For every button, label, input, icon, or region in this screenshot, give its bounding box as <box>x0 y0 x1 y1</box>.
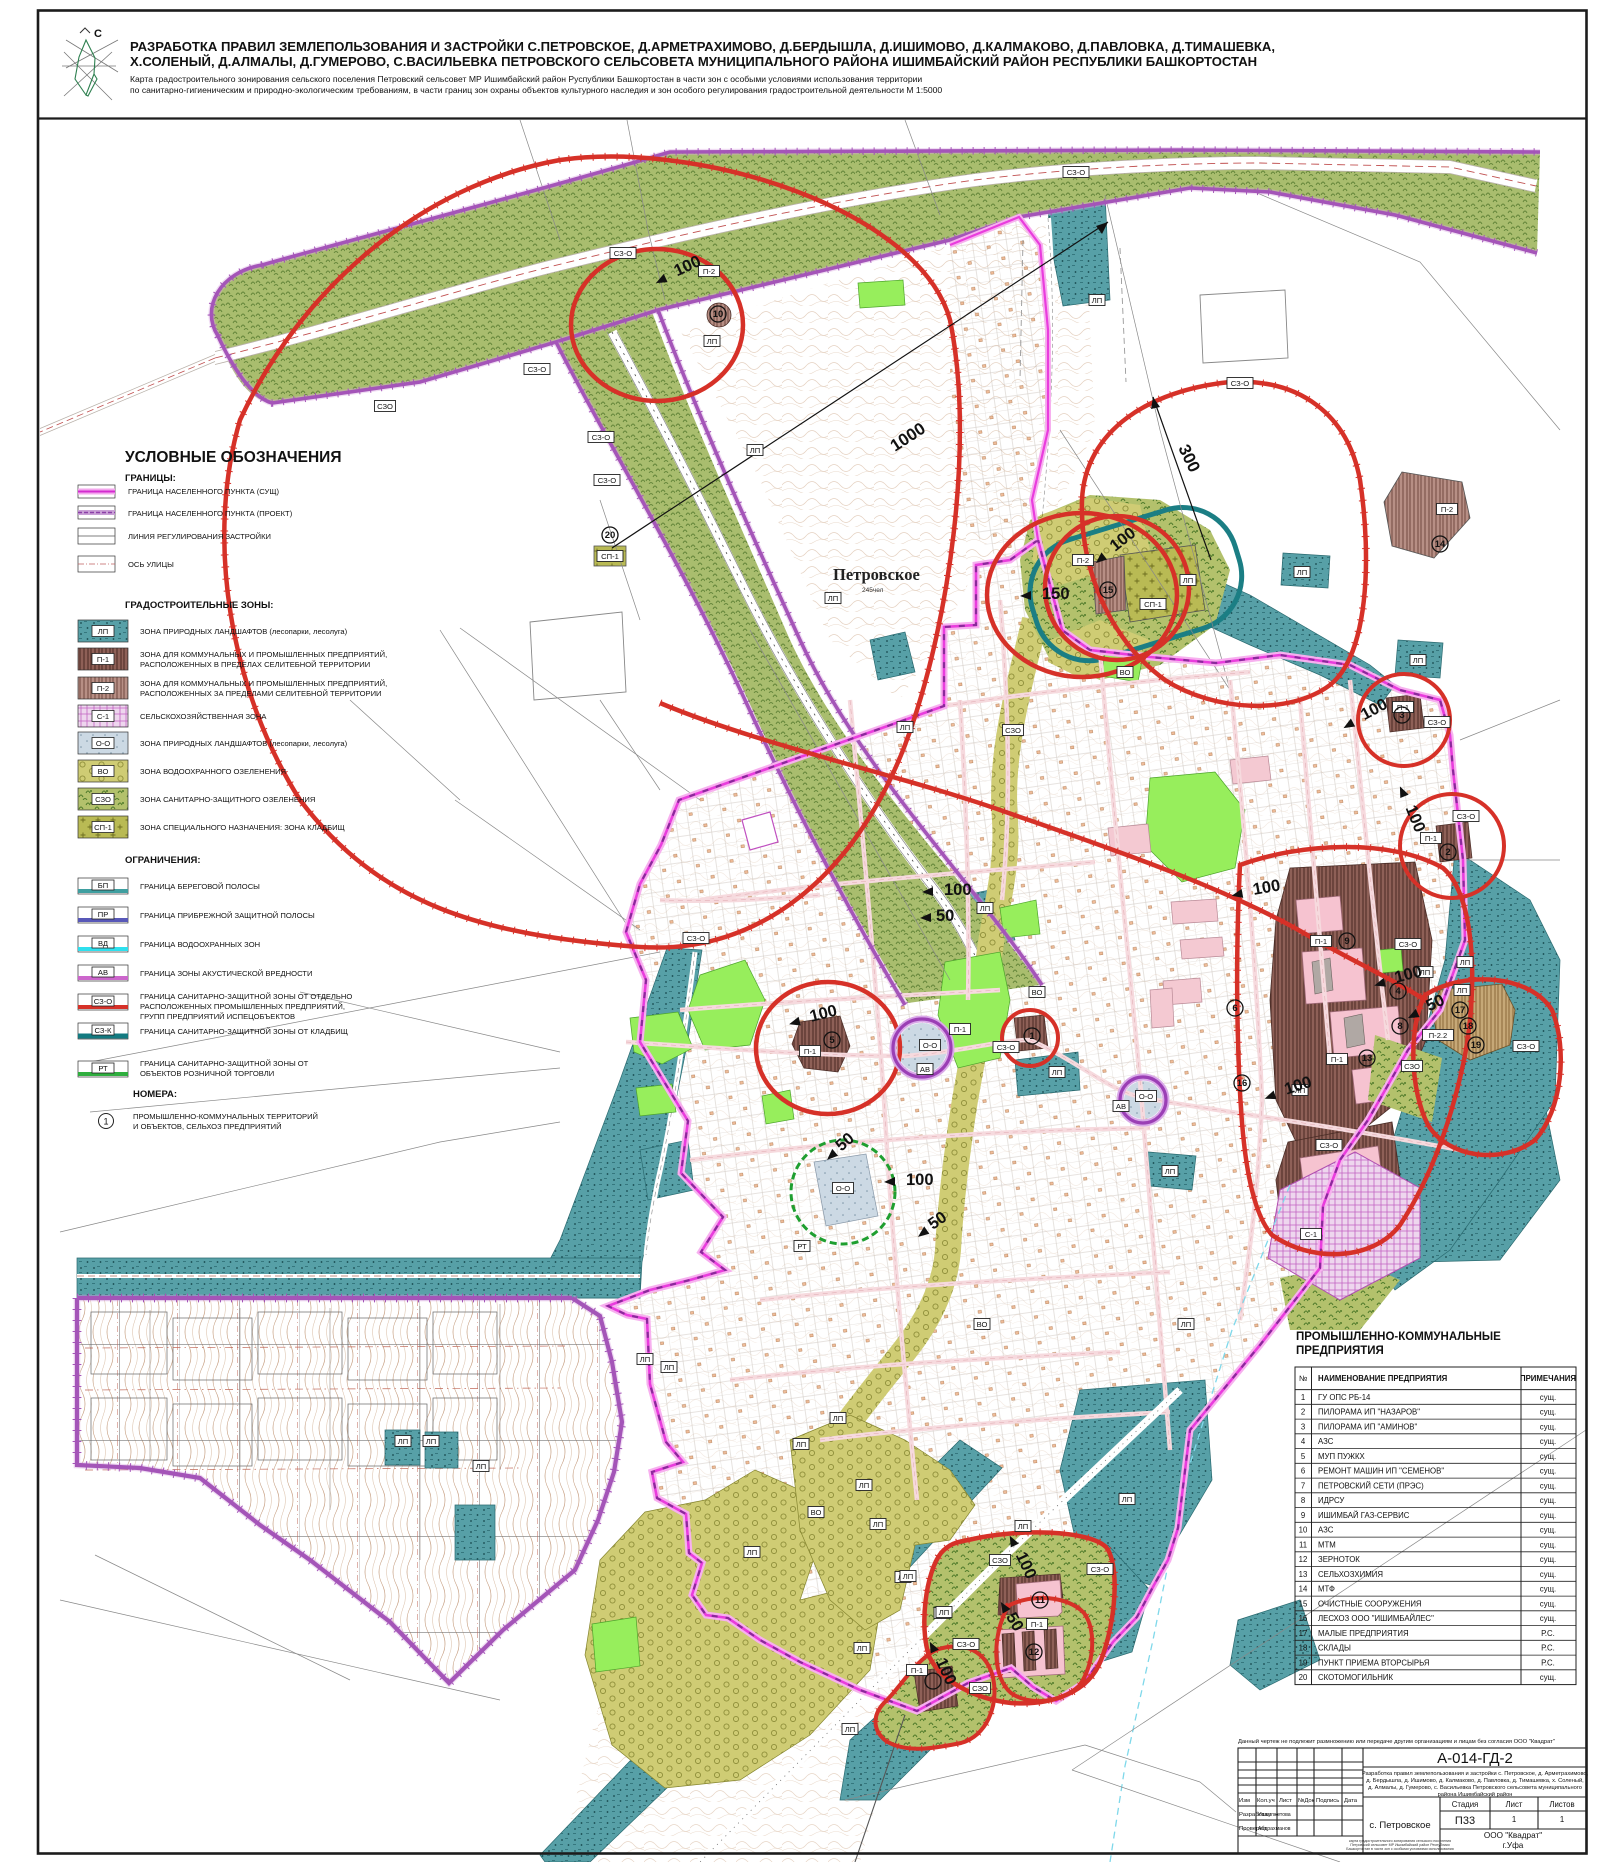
svg-text:ЗЕРНОТОК: ЗЕРНОТОК <box>1318 1555 1360 1564</box>
svg-text:16: 16 <box>1299 1614 1308 1623</box>
svg-text:Р.С.: Р.С. <box>1541 1644 1555 1653</box>
svg-text:ЛП: ЛП <box>939 1608 949 1617</box>
svg-text:ЛП: ЛП <box>1165 1167 1175 1176</box>
svg-text:О-О: О-О <box>96 739 110 748</box>
svg-text:СЗО: СЗО <box>1005 726 1021 735</box>
svg-text:ЛЕСХОЗ ООО "ИШИМБАЙЛЕС": ЛЕСХОЗ ООО "ИШИМБАЙЛЕС" <box>1318 1614 1434 1623</box>
svg-text:ЛП: ЛП <box>664 1363 674 1372</box>
svg-text:П33: П33 <box>1455 1815 1475 1827</box>
svg-text:ПИЛОРАМА ИП "АМИНОВ": ПИЛОРАМА ИП "АМИНОВ" <box>1318 1422 1417 1431</box>
svg-text:2: 2 <box>1445 847 1450 858</box>
svg-text:16: 16 <box>1237 1078 1248 1089</box>
svg-text:МАЛЫЕ ПРЕДПРИЯТИЯ: МАЛЫЕ ПРЕДПРИЯТИЯ <box>1318 1629 1409 1638</box>
svg-text:13: 13 <box>1299 1570 1308 1579</box>
svg-text:6: 6 <box>1232 1003 1237 1014</box>
svg-text:ЗОНА ДЛЯ КОММУНАЛЬНЫХ И ПРОМЫШ: ЗОНА ДЛЯ КОММУНАЛЬНЫХ И ПРОМЫШЛЕННЫХ ПРЕ… <box>140 650 387 659</box>
svg-text:И ОБЪЕКТОВ, СЕЛЬХОЗ ПРЕДПРИЯТИ: И ОБЪЕКТОВ, СЕЛЬХОЗ ПРЕДПРИЯТИЙ <box>133 1122 282 1131</box>
svg-text:П-2: П-2 <box>1441 505 1453 514</box>
svg-text:ЛП: ЛП <box>1052 1068 1062 1077</box>
svg-text:СЗ-О: СЗ-О <box>1320 1141 1339 1150</box>
svg-text:П-2: П-2 <box>1077 556 1089 565</box>
svg-text:50: 50 <box>936 907 954 925</box>
svg-text:района Ишимбайский район: района Ишимбайский район <box>1438 1791 1513 1798</box>
svg-text:18: 18 <box>1299 1644 1308 1653</box>
svg-text:д. Бердышла, д. Ишимово, д. Ка: д. Бердышла, д. Ишимово, д. Калмаково, д… <box>1366 1777 1584 1784</box>
svg-text:РАСПОЛОЖЕННЫХ ПРОМЫШЛЕННЫХ ПРЕ: РАСПОЛОЖЕННЫХ ПРОМЫШЛЕННЫХ ПРЕДПРИЯТИЙ, <box>140 1002 345 1011</box>
svg-text:РАЗРАБОТКА ПРАВИЛ ЗЕМЛЕПОЛЬЗОВ: РАЗРАБОТКА ПРАВИЛ ЗЕМЛЕПОЛЬЗОВАНИЯ И ЗАС… <box>130 39 1275 54</box>
svg-text:№Док: №Док <box>1298 1797 1315 1804</box>
svg-text:№: № <box>1299 1374 1307 1383</box>
svg-text:НАИМЕНОВАНИЕ ПРЕДПРИЯТИЯ: НАИМЕНОВАНИЕ ПРЕДПРИЯТИЯ <box>1318 1374 1448 1383</box>
svg-text:АЗС: АЗС <box>1318 1437 1334 1446</box>
svg-text:19: 19 <box>1471 1040 1482 1051</box>
svg-text:АВ: АВ <box>98 968 108 977</box>
svg-text:13: 13 <box>1362 1053 1373 1064</box>
svg-text:3: 3 <box>1399 710 1404 721</box>
svg-text:5: 5 <box>1301 1452 1306 1461</box>
svg-text:245чел: 245чел <box>862 587 884 594</box>
svg-text:4: 4 <box>1395 986 1401 997</box>
svg-text:МТМ: МТМ <box>1318 1540 1336 1549</box>
svg-text:ЛП: ЛП <box>1413 656 1423 665</box>
svg-text:СЗО: СЗО <box>972 1684 988 1693</box>
svg-text:ПРОМЫШЛЕННО-КОММУНАЛЬНЫЕ: ПРОМЫШЛЕННО-КОММУНАЛЬНЫЕ <box>1296 1331 1501 1343</box>
svg-text:сущ.: сущ. <box>1540 1526 1556 1535</box>
svg-text:ЛП: ЛП <box>1122 1495 1132 1504</box>
svg-text:ЛП: ЛП <box>750 446 760 455</box>
svg-text:П-1: П-1 <box>1031 1620 1043 1629</box>
svg-text:О-О: О-О <box>836 1184 850 1193</box>
svg-text:С-1: С-1 <box>1305 1230 1317 1239</box>
svg-text:150: 150 <box>1042 585 1070 603</box>
svg-text:СЗ-О: СЗ-О <box>1091 1565 1110 1574</box>
svg-text:19: 19 <box>1299 1658 1308 1667</box>
svg-text:сущ.: сущ. <box>1540 1437 1556 1446</box>
svg-text:ГРАНИЦА БЕРЕГОВОЙ ПОЛОСЫ: ГРАНИЦА БЕРЕГОВОЙ ПОЛОСЫ <box>140 882 260 891</box>
svg-text:ЛП: ЛП <box>903 1572 913 1581</box>
svg-text:сущ.: сущ. <box>1540 1614 1556 1623</box>
svg-text:ГРАНИЦА ВОДООХРАННЫХ ЗОН: ГРАНИЦА ВОДООХРАННЫХ ЗОН <box>140 940 260 949</box>
svg-text:ГРАНИЦА ПРИБРЕЖНОЙ ЗАЩИТНОЙ ПО: ГРАНИЦА ПРИБРЕЖНОЙ ЗАЩИТНОЙ ПОЛОСЫ <box>140 911 315 920</box>
svg-text:сущ.: сущ. <box>1540 1511 1556 1520</box>
svg-text:СЗ-О: СЗ-О <box>1231 379 1250 388</box>
svg-text:ЛП: ЛП <box>845 1725 855 1734</box>
svg-text:17: 17 <box>1455 1005 1466 1016</box>
svg-text:ГРАНИЦА САНИТАРНО-ЗАЩИТНОЙ ЗОН: ГРАНИЦА САНИТАРНО-ЗАЩИТНОЙ ЗОНЫ ОТ <box>140 1059 309 1068</box>
svg-text:ЗОНА САНИТАРНО-ЗАЩИТНОГО ОЗЕЛЕ: ЗОНА САНИТАРНО-ЗАЩИТНОГО ОЗЕЛЕНЕНИЯ <box>140 795 315 804</box>
svg-text:СЗ-О: СЗ-О <box>997 1043 1016 1052</box>
svg-text:ЛП: ЛП <box>833 1414 843 1423</box>
svg-text:8: 8 <box>1397 1021 1402 1032</box>
svg-text:ЛП: ЛП <box>828 594 838 603</box>
svg-text:ЛП: ЛП <box>1460 958 1470 967</box>
svg-text:10: 10 <box>713 309 724 320</box>
svg-text:СЕЛЬСКОХОЗЯЙСТВЕННАЯ ЗОНА: СЕЛЬСКОХОЗЯЙСТВЕННАЯ ЗОНА <box>140 712 267 721</box>
svg-text:Башкортостан в части зон с осо: Башкортостан в части зон с особыми услов… <box>1346 1847 1453 1851</box>
svg-text:20: 20 <box>605 530 616 541</box>
svg-text:Разработка правил землепользов: Разработка правил землепользования и зас… <box>1362 1770 1589 1777</box>
svg-text:СЗО: СЗО <box>95 795 111 804</box>
svg-text:ИШИМБАЙ ГАЗ-СЕРВИС: ИШИМБАЙ ГАЗ-СЕРВИС <box>1318 1511 1410 1520</box>
svg-text:Абдрахманов: Абдрахманов <box>1258 1826 1291 1832</box>
svg-text:ЛИНИЯ РЕГУЛИРОВАНИЯ ЗАСТРОЙКИ: ЛИНИЯ РЕГУЛИРОВАНИЯ ЗАСТРОЙКИ <box>128 532 271 541</box>
svg-text:ГРАНИЦА ЗОНЫ АКУСТИЧЕСКОЙ ВРЕД: ГРАНИЦА ЗОНЫ АКУСТИЧЕСКОЙ ВРЕДНОСТИ <box>140 969 312 978</box>
svg-text:4: 4 <box>1301 1437 1306 1446</box>
svg-text:ИДРСУ: ИДРСУ <box>1318 1496 1344 1505</box>
svg-text:СЗО: СЗО <box>1404 1062 1420 1071</box>
svg-text:П-1: П-1 <box>911 1666 923 1675</box>
svg-text:сущ.: сущ. <box>1540 1408 1556 1417</box>
svg-text:12: 12 <box>1299 1555 1308 1564</box>
svg-text:ЛП: ЛП <box>476 1462 486 1471</box>
svg-text:3: 3 <box>1301 1422 1305 1431</box>
svg-text:ГРАНИЦА САНИТАРНО-ЗАЩИТНОЙ ЗОН: ГРАНИЦА САНИТАРНО-ЗАЩИТНОЙ ЗОНЫ ОТ ОТДЕЛ… <box>140 992 352 1001</box>
svg-text:100: 100 <box>944 881 972 899</box>
svg-text:ПЕТРОВСКИЙ СЕТИ (ПРЭС): ПЕТРОВСКИЙ СЕТИ (ПРЭС) <box>1318 1481 1424 1490</box>
svg-text:ГРАНИЦА НАСЕЛЕННОГО ПУНКТА (ПР: ГРАНИЦА НАСЕЛЕННОГО ПУНКТА (ПРОЕКТ) <box>128 509 293 518</box>
svg-text:ЛП: ЛП <box>747 1548 757 1557</box>
svg-text:7: 7 <box>1301 1481 1305 1490</box>
svg-text:15: 15 <box>1299 1599 1308 1608</box>
svg-text:П-2.2: П-2.2 <box>1429 1031 1448 1040</box>
svg-text:сущ.: сущ. <box>1540 1452 1556 1461</box>
svg-text:ЛП: ЛП <box>859 1481 869 1490</box>
svg-text:ЛП: ЛП <box>398 1437 408 1446</box>
svg-text:ВО: ВО <box>977 1320 988 1329</box>
svg-text:СП-1: СП-1 <box>601 552 619 561</box>
svg-text:1: 1 <box>1029 1031 1035 1042</box>
svg-text:Дата: Дата <box>1344 1798 1358 1804</box>
svg-text:СЗ-О: СЗ-О <box>1067 168 1086 177</box>
svg-text:ЛП: ЛП <box>1183 576 1193 585</box>
svg-text:10: 10 <box>1299 1526 1308 1535</box>
svg-text:ЗОНА ВОДООХРАННОГО ОЗЕЛЕНЕНИЯ: ЗОНА ВОДООХРАННОГО ОЗЕЛЕНЕНИЯ <box>140 767 286 776</box>
svg-text:г.Уфа: г.Уфа <box>1503 1841 1524 1850</box>
svg-text:сущ.: сущ. <box>1540 1540 1556 1549</box>
svg-text:1: 1 <box>1301 1393 1305 1402</box>
svg-text:СЗ-О: СЗ-О <box>614 249 633 258</box>
svg-text:ГРАНИЦА НАСЕЛЕННОГО ПУНКТА (СУ: ГРАНИЦА НАСЕЛЕННОГО ПУНКТА (СУЩ) <box>128 487 279 496</box>
svg-text:СЗО: СЗО <box>992 1556 1008 1565</box>
svg-text:ОЧИСТНЫЕ СООРУЖЕНИЯ: ОЧИСТНЫЕ СООРУЖЕНИЯ <box>1318 1599 1422 1608</box>
svg-text:АВ: АВ <box>1116 1102 1126 1111</box>
svg-text:Ишкулжетова: Ишкулжетова <box>1258 1812 1291 1818</box>
svg-text:УСЛОВНЫЕ ОБОЗНАЧЕНИЯ: УСЛОВНЫЕ ОБОЗНАЧЕНИЯ <box>125 449 341 466</box>
svg-text:С-1: С-1 <box>97 712 109 721</box>
svg-text:9: 9 <box>1301 1511 1305 1520</box>
svg-text:ПРЕДПРИЯТИЯ: ПРЕДПРИЯТИЯ <box>1296 1345 1384 1357</box>
svg-text:ПР: ПР <box>98 910 109 919</box>
svg-text:1: 1 <box>1560 1815 1564 1824</box>
svg-text:2: 2 <box>1301 1408 1305 1417</box>
svg-text:П-1: П-1 <box>1315 937 1327 946</box>
svg-text:АЗС: АЗС <box>1318 1526 1334 1535</box>
svg-text:17: 17 <box>1299 1629 1308 1638</box>
svg-text:1: 1 <box>103 1117 108 1127</box>
svg-text:О-О: О-О <box>1139 1092 1153 1101</box>
svg-text:ЗОНА ПРИРОДНЫХ ЛАНДШАФТОВ (лес: ЗОНА ПРИРОДНЫХ ЛАНДШАФТОВ (лесопарки, ле… <box>140 627 348 636</box>
svg-text:АВ: АВ <box>920 1065 930 1074</box>
svg-text:100: 100 <box>906 1171 934 1189</box>
svg-text:Лист: Лист <box>1279 1798 1292 1804</box>
svg-text:18: 18 <box>1463 1021 1474 1032</box>
svg-text:20: 20 <box>1299 1673 1308 1682</box>
svg-text:О-О: О-О <box>923 1041 937 1050</box>
svg-text:СП-1: СП-1 <box>94 823 112 832</box>
svg-text:Х.СОЛЕНЫЙ, Д.АЛМАЛЫ, Д.ГУМЕРОВ: Х.СОЛЕНЫЙ, Д.АЛМАЛЫ, Д.ГУМЕРОВО, С.ВАСИЛ… <box>130 54 1257 69</box>
svg-text:11: 11 <box>1299 1540 1307 1549</box>
svg-text:Петровское: Петровское <box>833 565 920 584</box>
svg-text:ОБЪЕКТОВ РОЗНИЧНОЙ ТОРГОВЛИ: ОБЪЕКТОВ РОЗНИЧНОЙ ТОРГОВЛИ <box>140 1069 274 1078</box>
svg-text:РАСПОЛОЖЕННЫХ В ПРЕДЕЛАХ СЕЛИТ: РАСПОЛОЖЕННЫХ В ПРЕДЕЛАХ СЕЛИТЕБНОЙ ТЕРР… <box>140 660 370 669</box>
svg-text:14: 14 <box>1299 1585 1308 1594</box>
svg-text:СЗ-О: СЗ-О <box>1517 1042 1536 1051</box>
svg-text:5: 5 <box>829 1035 835 1046</box>
svg-text:12: 12 <box>1029 1647 1040 1658</box>
svg-text:СЗ-О: СЗ-О <box>592 433 611 442</box>
svg-text:ЛП: ЛП <box>900 723 910 732</box>
svg-text:ПУНКТ ПРИЕМА ВТОРСЫРЬЯ: ПУНКТ ПРИЕМА ВТОРСЫРЬЯ <box>1318 1658 1430 1667</box>
svg-text:по санитарно-гигиеническим и п: по санитарно-гигиеническим и природно-эк… <box>130 85 942 95</box>
svg-text:сущ.: сущ. <box>1540 1481 1556 1490</box>
svg-text:ЛП: ЛП <box>857 1644 867 1653</box>
svg-text:Листов: Листов <box>1549 1800 1574 1809</box>
svg-text:сущ.: сущ. <box>1540 1393 1556 1402</box>
svg-text:МУП ПУЖКХ: МУП ПУЖКХ <box>1318 1452 1366 1461</box>
svg-text:НОМЕРА:: НОМЕРА: <box>133 1089 177 1100</box>
svg-text:П-2: П-2 <box>703 267 715 276</box>
svg-text:ЛП: ЛП <box>640 1355 650 1364</box>
svg-text:СЗ-О: СЗ-О <box>1399 940 1418 949</box>
svg-text:ЗОНА ДЛЯ КОММУНАЛЬНЫХ И ПРОМЫШ: ЗОНА ДЛЯ КОММУНАЛЬНЫХ И ПРОМЫШЛЕННЫХ ПРЕ… <box>140 679 387 688</box>
svg-text:П-2: П-2 <box>97 684 109 693</box>
svg-text:ВО: ВО <box>98 767 109 776</box>
svg-text:ООО "Квадрат": ООО "Квадрат" <box>1484 1831 1542 1840</box>
svg-text:Данный чертеж не подлежит разм: Данный чертеж не подлежит размножению ил… <box>1238 1738 1555 1745</box>
svg-text:СЗ-О: СЗ-О <box>957 1640 976 1649</box>
svg-text:СЗ-О: СЗ-О <box>687 934 706 943</box>
svg-text:Кол.уч: Кол.уч <box>1257 1798 1275 1804</box>
svg-text:сущ.: сущ. <box>1540 1422 1556 1431</box>
svg-text:1: 1 <box>1512 1815 1516 1824</box>
svg-text:сущ.: сущ. <box>1540 1585 1556 1594</box>
svg-text:сущ.: сущ. <box>1540 1599 1556 1608</box>
svg-text:ГРУПП ПРЕДПРИЯТИЙ ИСПЕЦОБЪЕКТО: ГРУПП ПРЕДПРИЯТИЙ ИСПЕЦОБЪЕКТОВ <box>140 1012 295 1021</box>
svg-text:ВО: ВО <box>1032 988 1043 997</box>
svg-text:П-1: П-1 <box>1331 1055 1343 1064</box>
svg-text:СЗ-О: СЗ-О <box>598 476 617 485</box>
svg-text:ПРИМЕЧАНИЯ: ПРИМЕЧАНИЯ <box>1520 1374 1576 1383</box>
svg-text:ОСЬ УЛИЦЫ: ОСЬ УЛИЦЫ <box>128 560 174 569</box>
svg-text:РТ: РТ <box>98 1064 108 1073</box>
svg-text:ЛП: ЛП <box>873 1520 883 1529</box>
svg-text:ЗОНА ПРИРОДНЫХ ЛАНДШАФТОВ (лес: ЗОНА ПРИРОДНЫХ ЛАНДШАФТОВ (лесопарки, ле… <box>140 739 348 748</box>
svg-text:6: 6 <box>1301 1467 1305 1476</box>
svg-text:СКОТОМОГИЛЬНИК: СКОТОМОГИЛЬНИК <box>1318 1673 1393 1682</box>
svg-text:СЕЛЬХОЗХИМИЯ: СЕЛЬХОЗХИМИЯ <box>1318 1570 1383 1579</box>
svg-text:14: 14 <box>1435 539 1446 550</box>
svg-text:СЗ-О: СЗ-О <box>1457 812 1476 821</box>
svg-text:Карта градостроительного зонир: Карта градостроительного зонирования сел… <box>130 74 922 84</box>
svg-text:СЗ-О: СЗ-О <box>94 997 113 1006</box>
svg-text:ПРОМЫШЛЕННО-КОММУНАЛЬНЫХ ТЕРРИ: ПРОМЫШЛЕННО-КОММУНАЛЬНЫХ ТЕРРИТОРИЙ <box>133 1112 318 1121</box>
svg-text:сущ.: сущ. <box>1540 1467 1556 1476</box>
svg-text:Изм: Изм <box>1239 1798 1250 1804</box>
svg-text:ГРАНИЦА САНИТАРНО-ЗАЩИТНОЙ ЗОН: ГРАНИЦА САНИТАРНО-ЗАЩИТНОЙ ЗОНЫ ОТ КЛАДБ… <box>140 1027 348 1036</box>
svg-text:ЛП: ЛП <box>1018 1522 1028 1531</box>
svg-text:ОГРАНИЧЕНИЯ:: ОГРАНИЧЕНИЯ: <box>125 855 201 866</box>
svg-text:РТ: РТ <box>797 1242 807 1251</box>
svg-text:СЗ-О: СЗ-О <box>528 365 547 374</box>
svg-text:ЛП: ЛП <box>98 627 108 636</box>
svg-text:сущ.: сущ. <box>1540 1570 1556 1579</box>
svg-text:РЕМОНТ МАШИН ИП "СЕМЕНОВ": РЕМОНТ МАШИН ИП "СЕМЕНОВ" <box>1318 1467 1444 1476</box>
svg-text:П-1: П-1 <box>1425 834 1437 843</box>
svg-text:ЛП: ЛП <box>1092 296 1102 305</box>
svg-text:Лист: Лист <box>1506 1800 1523 1809</box>
svg-text:Стадия: Стадия <box>1452 1800 1479 1809</box>
svg-text:ЗОНА СПЕЦИАЛЬНОГО НАЗНАЧЕНИЯ:: ЗОНА СПЕЦИАЛЬНОГО НАЗНАЧЕНИЯ: ЗОНА КЛАДБ… <box>140 823 345 832</box>
svg-text:ЛП: ЛП <box>980 904 990 913</box>
svg-text:П-1: П-1 <box>97 655 109 664</box>
svg-text:МТФ: МТФ <box>1318 1585 1335 1594</box>
svg-text:СКЛАДЫ: СКЛАДЫ <box>1318 1644 1351 1653</box>
svg-text:Р.С.: Р.С. <box>1541 1658 1555 1667</box>
svg-text:д. Алмалы, д. Гумерово, с. Вас: д. Алмалы, д. Гумерово, с. Васильевка Пе… <box>1368 1785 1582 1791</box>
svg-text:сущ.: сущ. <box>1540 1555 1556 1564</box>
svg-text:ВО: ВО <box>811 1508 822 1517</box>
svg-text:с. Петровское: с. Петровское <box>1369 1820 1430 1831</box>
svg-text:БП: БП <box>98 881 108 890</box>
svg-text:СЗ-К: СЗ-К <box>95 1026 113 1035</box>
svg-text:СЗО: СЗО <box>377 402 393 411</box>
svg-text:С: С <box>94 28 102 40</box>
svg-text:ЛП: ЛП <box>1457 986 1467 995</box>
svg-text:Р.С.: Р.С. <box>1541 1629 1555 1638</box>
svg-text:ВО: ВО <box>1120 668 1131 677</box>
svg-text:11: 11 <box>1035 1595 1046 1606</box>
svg-text:П-1: П-1 <box>804 1047 816 1056</box>
svg-text:ЛП: ЛП <box>1181 1320 1191 1329</box>
svg-text:8: 8 <box>1301 1496 1305 1505</box>
svg-text:ВД: ВД <box>98 939 108 948</box>
svg-text:15: 15 <box>1103 585 1114 596</box>
svg-text:РАСПОЛОЖЕННЫХ ЗА ПРЕДЕЛАМИ СЕЛ: РАСПОЛОЖЕННЫХ ЗА ПРЕДЕЛАМИ СЕЛИТЕБНОЙ ТЕ… <box>140 689 382 698</box>
svg-text:Подпись: Подпись <box>1316 1798 1339 1804</box>
svg-text:ГУ ОПС РБ-14: ГУ ОПС РБ-14 <box>1318 1393 1371 1402</box>
svg-text:сущ.: сущ. <box>1540 1496 1556 1505</box>
svg-text:ПИЛОРАМА ИП "НАЗАРОВ": ПИЛОРАМА ИП "НАЗАРОВ" <box>1318 1408 1420 1417</box>
svg-text:ЛП: ЛП <box>796 1440 806 1449</box>
svg-text:СП-1: СП-1 <box>1144 600 1162 609</box>
svg-text:ГРАДОСТРОИТЕЛЬНЫЕ ЗОНЫ:: ГРАДОСТРОИТЕЛЬНЫЕ ЗОНЫ: <box>125 600 273 611</box>
svg-text:9: 9 <box>1344 936 1349 947</box>
svg-text:ЛП: ЛП <box>707 337 717 346</box>
svg-text:ЛП: ЛП <box>1297 568 1307 577</box>
svg-text:СЗ-О: СЗ-О <box>1428 718 1447 727</box>
svg-text:П-1: П-1 <box>954 1025 966 1034</box>
svg-text:ЛП: ЛП <box>426 1437 436 1446</box>
svg-text:сущ.: сущ. <box>1540 1673 1556 1682</box>
svg-text:ГРАНИЦЫ:: ГРАНИЦЫ: <box>125 473 176 484</box>
svg-text:А-014-ГД-2: А-014-ГД-2 <box>1437 1750 1513 1767</box>
